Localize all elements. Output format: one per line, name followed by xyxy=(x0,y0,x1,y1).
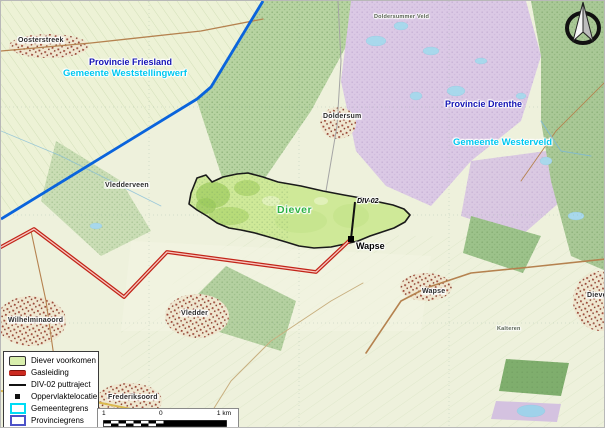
municipal-border-swatch xyxy=(9,403,26,414)
legend-item-gemeentegrens: Gemeentegrens xyxy=(9,403,94,414)
north-arrow-icon xyxy=(560,1,602,47)
well-line-swatch xyxy=(9,384,26,386)
legend-panel: Diever voorkomen Gasleiding DIV-02 puttr… xyxy=(3,351,99,428)
scale-left-value: 1 xyxy=(102,410,106,417)
legend-item-puttraject: DIV-02 puttraject xyxy=(9,379,94,390)
scale-bar: 1 0 1 km xyxy=(97,408,239,428)
surface-location-swatch xyxy=(9,394,26,399)
legend-label-provinciegrens: Provinciegrens xyxy=(31,416,84,425)
legend-label-gasleiding: Gasleiding xyxy=(31,368,69,377)
legend-item-oppervlaktelocatie: Oppervlaktelocatie xyxy=(9,391,94,402)
legend-label-gemeentegrens: Gemeentegrens xyxy=(31,404,88,413)
scale-right-value: 1 km xyxy=(217,410,231,417)
deposit-area-swatch xyxy=(9,356,26,366)
scale-bar-graphic xyxy=(103,420,227,427)
surface-location-marker xyxy=(348,236,354,242)
legend-label-deposit: Diever voorkomen xyxy=(31,356,96,365)
gas-line-swatch xyxy=(9,370,26,376)
legend-item-provinciegrens: Provinciegrens xyxy=(9,415,94,426)
provincial-border-swatch xyxy=(9,415,26,426)
legend-item-gasleiding: Gasleiding xyxy=(9,367,94,378)
legend-item-deposit: Diever voorkomen xyxy=(9,355,94,366)
legend-label-puttraject: DIV-02 puttraject xyxy=(31,380,91,389)
map-figure: Provincie Friesland Gemeente Weststellin… xyxy=(0,0,605,428)
legend-label-oppervlaktelocatie: Oppervlaktelocatie xyxy=(31,392,97,401)
scale-zero-value: 0 xyxy=(159,410,163,417)
